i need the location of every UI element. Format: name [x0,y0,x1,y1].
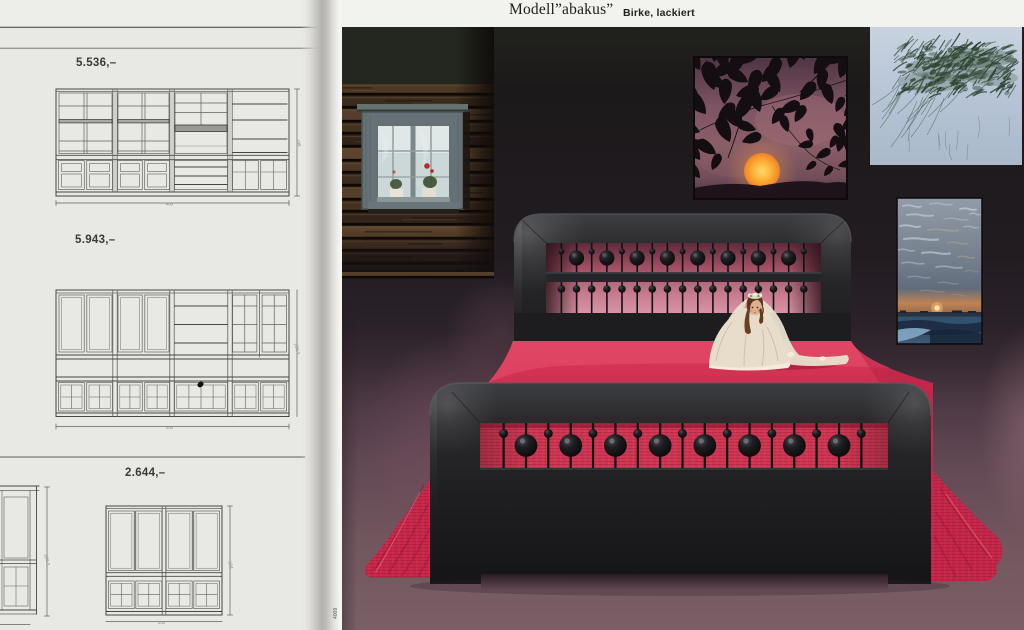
svg-text:400: 400 [166,425,174,430]
svg-text:200: 200 [158,620,166,625]
svg-text:5.943,–: 5.943,– [75,234,116,246]
svg-text:4009: 4009 [333,608,339,619]
svg-text:5.536,–: 5.536,– [76,57,117,69]
svg-text:400: 400 [166,202,174,207]
svg-text:2.644,–: 2.644,– [125,467,166,479]
